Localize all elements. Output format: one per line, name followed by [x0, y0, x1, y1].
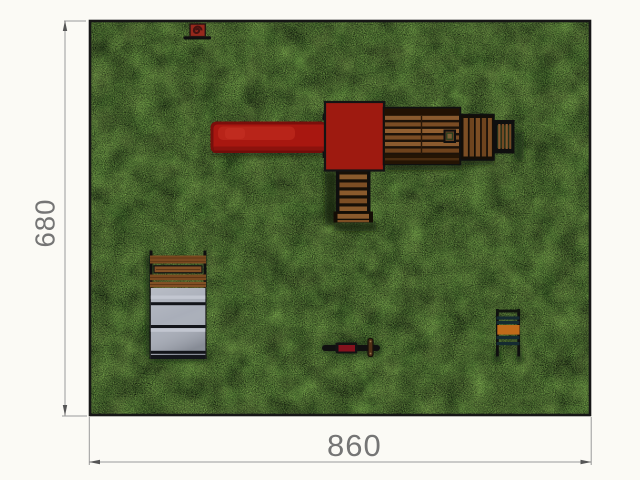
svg-text:680: 680	[30, 199, 61, 248]
svg-text:860: 860	[327, 428, 382, 463]
